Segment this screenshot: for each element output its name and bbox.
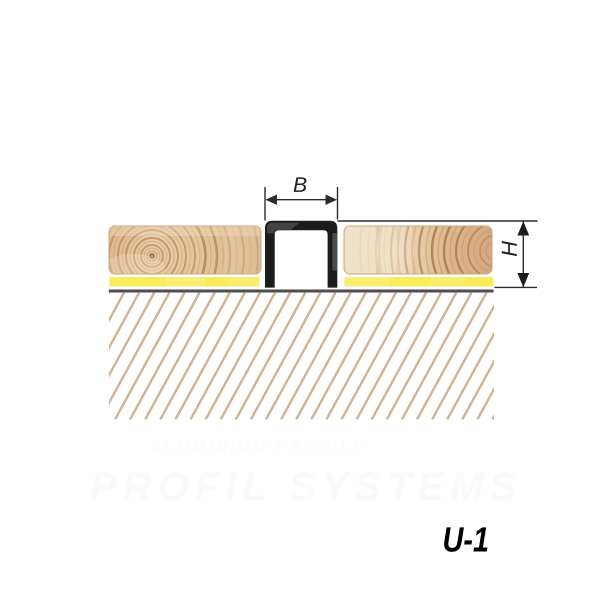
svg-text:PROFIL SYSTEMS: PROFIL SYSTEMS xyxy=(90,465,522,509)
svg-text:ALUMINIUM PROFILE: ALUMINIUM PROFILE xyxy=(149,439,366,456)
